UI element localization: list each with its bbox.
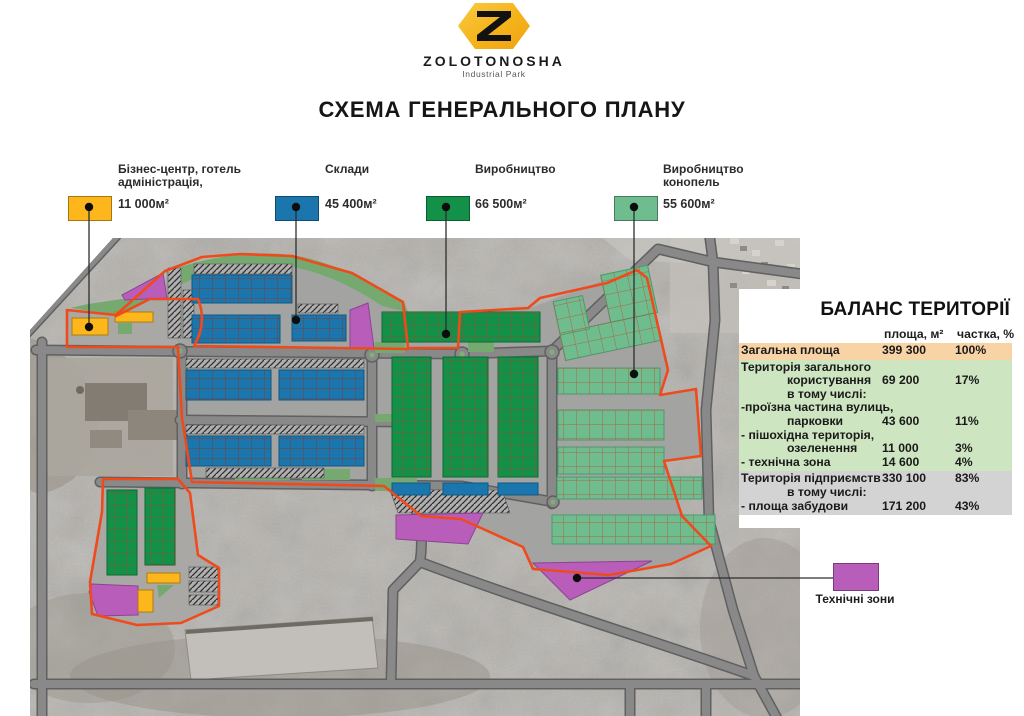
legend-label-tech-zone: Технічні зони xyxy=(793,592,917,606)
legend-swatch-business xyxy=(68,196,112,221)
table-row: Територія підприємств330 10083% xyxy=(739,472,1012,486)
col-share-header: частка, % xyxy=(957,327,1014,341)
table-row: парковки43 60011% xyxy=(739,415,1012,429)
table-row: користування69 20017% xyxy=(739,374,1012,388)
balance-table-panel: БАЛАНС ТЕРИТОРІЇ площа, м² частка, % Заг… xyxy=(739,289,1016,528)
legend-swatch-warehouse xyxy=(275,196,319,221)
table-row: Загальна площа399 300100% xyxy=(739,344,1012,358)
legend-swatch-hemp xyxy=(614,196,658,221)
legend-item-hemp: Виробництвоконопель 55 600м² xyxy=(663,163,813,211)
col-area-header: площа, м² xyxy=(884,327,943,341)
table-row: - технічна зона14 6004% xyxy=(739,456,1012,470)
page-title: СХЕМА ГЕНЕРАЛЬНОГО ПЛАНУ xyxy=(0,97,1004,123)
legend-item-production: Виробництво 66 500м² xyxy=(475,163,625,211)
master-plan-map xyxy=(30,228,800,716)
balance-table-header: площа, м² частка, % xyxy=(739,327,1016,341)
table-group-enterprises: Територія підприємств330 10083% в тому ч… xyxy=(739,471,1012,515)
brand-subtitle: Industrial Park xyxy=(0,69,988,79)
legend-swatch-tech-zone xyxy=(833,563,879,591)
balance-table-title: БАЛАНС ТЕРИТОРІЇ xyxy=(739,299,1010,321)
table-row: -проїзна частина вулиць, xyxy=(739,401,1012,415)
table-row: озеленення11 0003% xyxy=(739,442,1012,456)
table-group-common-use: Територія загального користування69 2001… xyxy=(739,360,1012,472)
master-plan-page: ZOLOTONOSHA Industrial Park СХЕМА ГЕНЕРА… xyxy=(0,0,1024,716)
table-row: - площа забудови171 20043% xyxy=(739,500,1012,514)
legend-area-value: 11 000м² xyxy=(118,197,268,211)
legend-swatch-production xyxy=(426,196,470,221)
brand-name: ZOLOTONOSHA xyxy=(0,53,988,69)
table-row: Територія загального xyxy=(739,361,1012,375)
table-group-total: Загальна площа399 300100% xyxy=(739,343,1012,360)
table-row: - пішохідна територія, xyxy=(739,429,1012,443)
table-row: в тому числі: xyxy=(739,388,1012,402)
legend-area-value: 55 600м² xyxy=(663,197,813,211)
table-row: в тому числі: xyxy=(739,486,1012,500)
legend-item-business: Бізнес-центр, готельадміністрація, 11 00… xyxy=(118,163,268,211)
zolotonosha-logo-icon xyxy=(457,2,531,50)
legend-area-value: 66 500м² xyxy=(475,197,625,211)
